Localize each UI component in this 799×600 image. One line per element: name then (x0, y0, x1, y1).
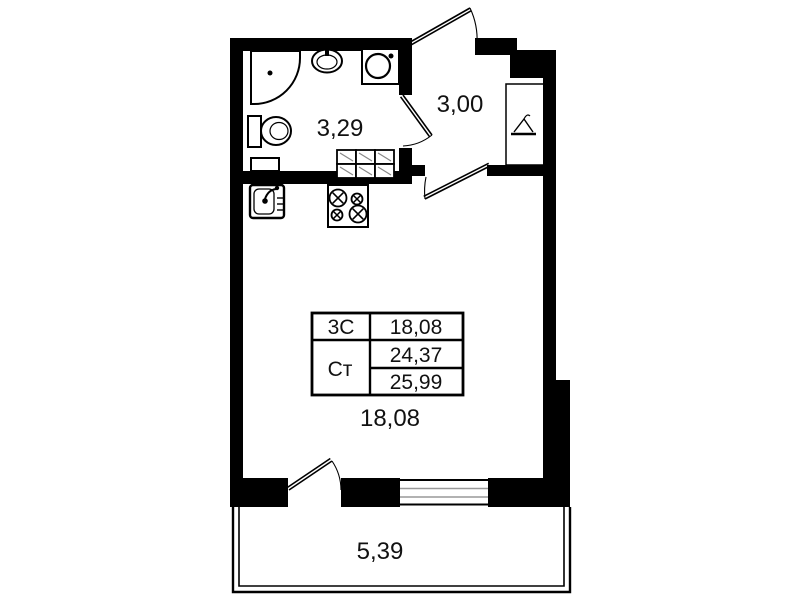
balcony-door (287, 459, 341, 491)
bottom-wall-mid-block (341, 478, 400, 507)
balcony-area-label: 5,39 (357, 538, 404, 565)
washing-machine-icon (362, 49, 399, 84)
bathroom-right-wall-upper (399, 38, 412, 95)
left-wall (230, 38, 243, 478)
table-studio-label: Ст (328, 358, 353, 381)
vent-grid-icon (337, 150, 394, 178)
hallway-area-label: 3,00 (437, 91, 484, 118)
bottom-wall-left-block (230, 478, 288, 507)
hanger-icon (511, 115, 536, 134)
wardrobe-niche (506, 84, 543, 165)
bathtub-icon (251, 51, 300, 104)
room-door (424, 163, 490, 199)
table-total-with-balcony-value: 25,99 (390, 371, 443, 394)
bathroom-door-swing-arc (403, 135, 432, 146)
entrance-door (405, 8, 477, 48)
living-room-area-label: 18,08 (360, 405, 420, 432)
floor-plan-svg: 3С 18,08 Ст 24,37 25,99 3,29 3,00 18,08 … (0, 0, 799, 600)
hall-corner-block (510, 50, 556, 78)
bathroom-door (401, 95, 432, 146)
table-living-value: 18,08 (390, 316, 443, 339)
hall-bottom-wall-left-stub (399, 165, 425, 176)
balcony-door-swing-arc (332, 461, 341, 490)
bathroom-area-label: 3,29 (317, 115, 364, 142)
bottom-wall-right-block (488, 478, 543, 507)
right-wall (543, 77, 556, 380)
table-type-label: 3С (328, 316, 355, 339)
kitchen-sink-icon (250, 185, 284, 218)
right-wall-wide (543, 380, 570, 507)
floor-plan-canvas: 3С 18,08 Ст 24,37 25,99 3,29 3,00 18,08 … (0, 0, 799, 600)
bath-cabinet (251, 158, 279, 171)
stove-icon (328, 185, 368, 227)
niche-outline (506, 84, 543, 165)
toilet-icon (248, 116, 291, 147)
walls (230, 38, 570, 507)
table-total-value: 24,37 (390, 344, 443, 367)
window (400, 480, 488, 505)
area-table: 3С 18,08 Ст 24,37 25,99 (312, 313, 463, 395)
